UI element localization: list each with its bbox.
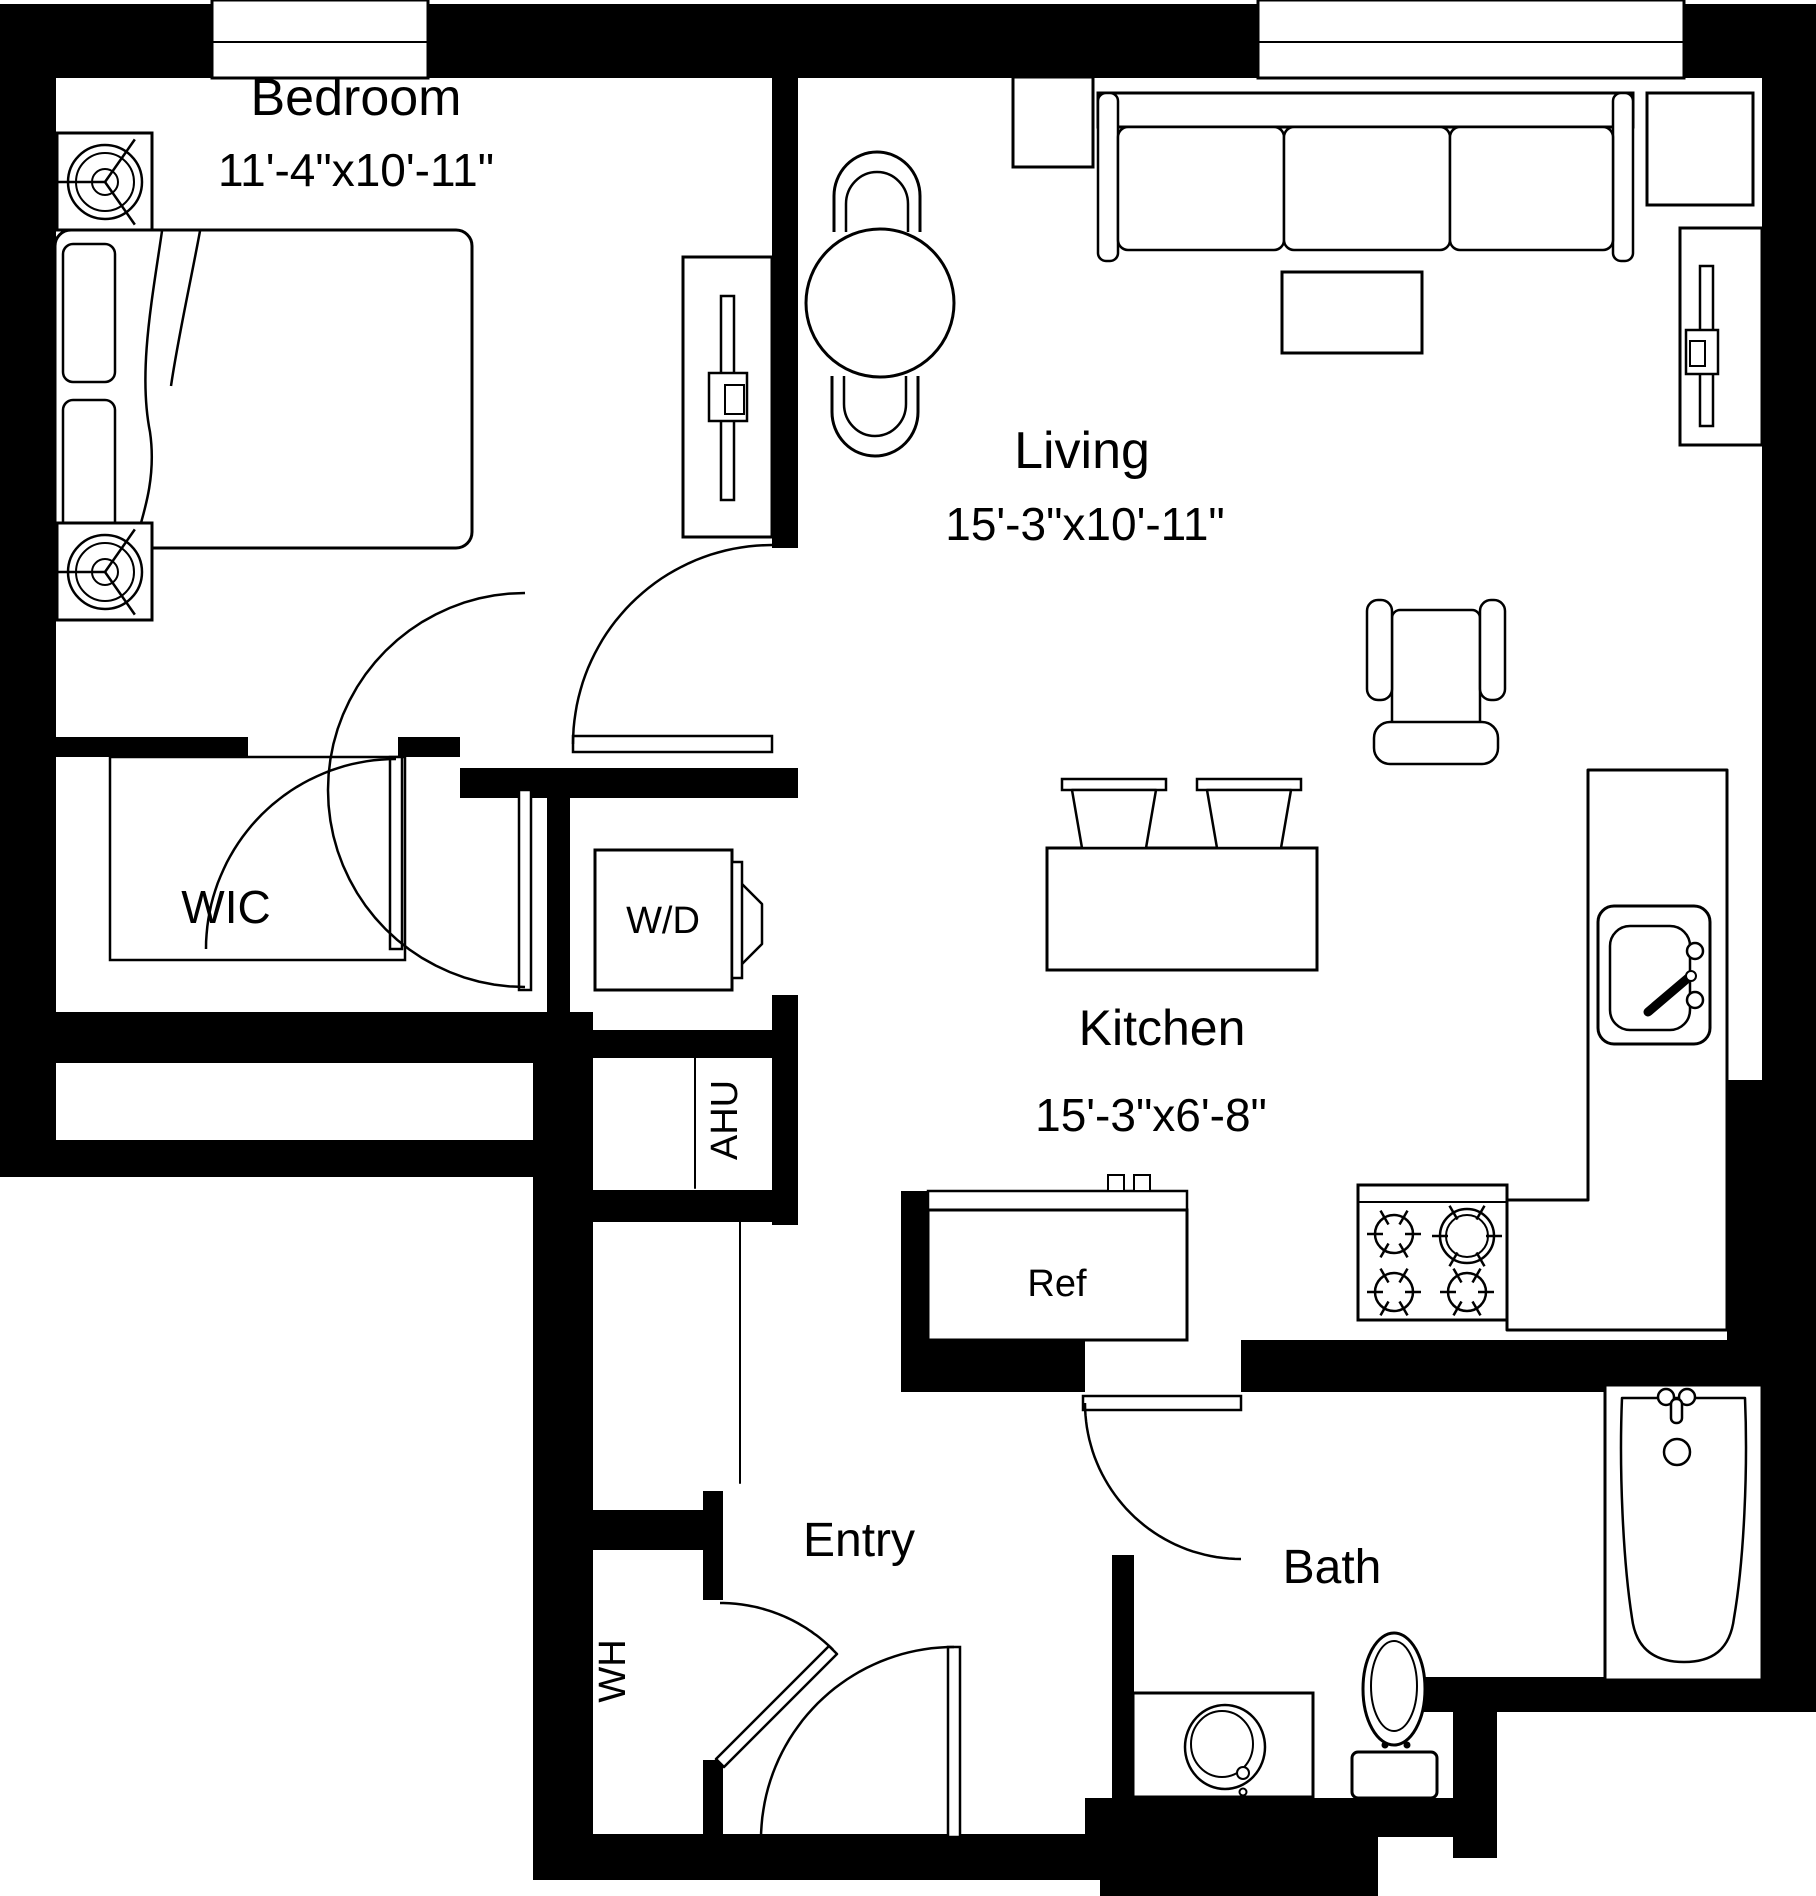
wall-ahu-bottom: [560, 1190, 798, 1222]
wall-kitchen-se: [1727, 1080, 1762, 1385]
living-dims: 15'-3"x10'-11": [945, 498, 1225, 550]
bath-door-leaf: [1083, 1396, 1241, 1410]
toilet-bowl-inner: [1371, 1641, 1417, 1731]
kitchen-faucet-knob-1: [1687, 943, 1703, 959]
wall-patio-edge: [0, 1140, 593, 1177]
toilet-bolt-left: [1382, 1742, 1388, 1748]
bedroom-door-leaf: [573, 736, 772, 752]
kitchen-label: Kitchen: [1079, 1000, 1246, 1056]
sofa-cushion-2: [1284, 127, 1450, 250]
living-label: Living: [1014, 422, 1150, 480]
bedroom-window: [212, 0, 428, 78]
ref-counter-edge: [928, 1191, 1187, 1210]
kitchen-faucet-base: [1686, 971, 1696, 981]
wall-bath-south: [1085, 1798, 1497, 1837]
vanity-faucet-dot: [1237, 1767, 1249, 1779]
bedroom-door-swing: [573, 545, 772, 744]
wd-door-bulge: [742, 884, 762, 964]
kitchen-counter: [1507, 770, 1727, 1330]
entry-door-swing: [761, 1647, 954, 1840]
side-table-right: [1647, 93, 1753, 205]
wall-wh-stub-upper: [703, 1491, 723, 1600]
wh-label: WH: [592, 1639, 634, 1702]
side-table-left: [1013, 77, 1093, 167]
ref-label: Ref: [1027, 1263, 1087, 1305]
wall-wic-top-right: [398, 737, 460, 757]
wall-ref-left: [901, 1191, 928, 1340]
wall-wd-bottom: [547, 1030, 798, 1058]
floor-plan: Bedroom11'-4"x10'-11"Living15'-3"x10'-11…: [0, 0, 1816, 1896]
wall-wd-left: [547, 798, 570, 1030]
bathtub-outer: [1605, 1385, 1762, 1680]
wall-foundation-block: [1100, 1837, 1378, 1896]
entry-label: Entry: [803, 1514, 915, 1567]
wh-door-leaf: [716, 1646, 837, 1767]
wd-panel: [732, 862, 742, 978]
sofa-arm-right: [1613, 93, 1633, 261]
bedroom-tv-mount-inner: [725, 385, 744, 414]
wall-mid-column: [533, 1063, 593, 1840]
bedroom-label: Bedroom: [251, 69, 462, 127]
vanity-drain-dot: [1240, 1789, 1247, 1796]
wall-wic-top-left: [56, 737, 248, 757]
entry-door-leaf: [948, 1647, 960, 1837]
living-tv-mount-inner: [1690, 341, 1705, 366]
bed-pillow-top: [63, 244, 115, 382]
dining-table: [806, 229, 954, 377]
kitchen-dims: 15'-3"x6'-8": [1035, 1089, 1267, 1141]
stool-1-back: [1062, 779, 1166, 790]
wall-bath-left: [1112, 1555, 1134, 1798]
sofa-arm-left: [1098, 93, 1118, 261]
ahu-label: AHU: [704, 1080, 746, 1160]
dining-chair-bottom-inner: [844, 376, 906, 436]
wall-wic-bottom: [0, 1012, 593, 1063]
coffee-table: [1282, 272, 1422, 353]
wall-entry-south: [533, 1834, 1110, 1880]
sofa-cushion-1: [1118, 127, 1284, 250]
wall-left: [0, 4, 56, 1177]
sofa-cushion-3: [1450, 127, 1613, 250]
bedroom-dims: 11'-4"x10'-11": [218, 144, 494, 196]
armchair-arm-left: [1367, 600, 1392, 700]
tub-spout: [1671, 1399, 1682, 1423]
ref-handle-1: [1108, 1175, 1124, 1191]
bed-pillow-bottom: [63, 400, 115, 538]
living-window: [1258, 0, 1684, 78]
wall-right: [1762, 4, 1816, 1712]
wall-under-tub: [1397, 1677, 1762, 1712]
burner-tr-inner: [1446, 1215, 1488, 1257]
wd-door-leaf: [519, 790, 531, 990]
kitchen-island: [1047, 848, 1317, 970]
bath-door-swing: [1085, 1403, 1241, 1559]
armchair-back: [1374, 722, 1498, 764]
toilet-bolt-right: [1404, 1742, 1410, 1748]
wall-bedroom-living-divider: [772, 78, 798, 548]
tub-drain: [1664, 1439, 1690, 1465]
wall-wh-stub-lower: [703, 1760, 723, 1834]
dining-chair-top-inner: [846, 172, 908, 232]
wall-bath-divider-left: [901, 1340, 1085, 1392]
stool-1-seat: [1072, 790, 1156, 848]
stool-2-back: [1197, 779, 1301, 790]
armchair-arm-right: [1480, 600, 1505, 700]
wall-hall-south: [460, 768, 798, 798]
stool-2-seat: [1207, 790, 1291, 848]
wd-label: W/D: [626, 900, 700, 942]
wh-door-swing: [720, 1603, 833, 1650]
wic-label: WIC: [181, 881, 270, 933]
bath-label: Bath: [1283, 1541, 1382, 1594]
sofa-back: [1098, 93, 1633, 127]
ref-handle-2: [1134, 1175, 1150, 1191]
bed: [55, 230, 472, 548]
floor-plan-drawing: Bedroom11'-4"x10'-11"Living15'-3"x10'-11…: [0, 0, 1816, 1896]
toilet-tank: [1352, 1752, 1437, 1798]
wic-door-leaf: [390, 757, 402, 949]
kitchen-faucet-knob-2: [1687, 992, 1703, 1008]
